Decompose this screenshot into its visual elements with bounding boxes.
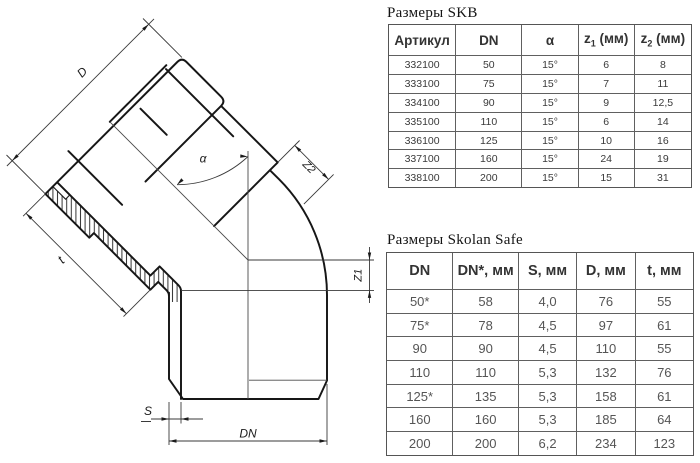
svg-text:DN: DN xyxy=(239,427,257,441)
svg-text:D: D xyxy=(74,64,90,80)
svg-text:Z1: Z1 xyxy=(353,269,365,283)
svg-text:t: t xyxy=(54,252,68,266)
svg-text:α: α xyxy=(200,152,208,166)
svg-text:S: S xyxy=(144,404,152,418)
svg-text:Z2: Z2 xyxy=(299,158,317,176)
